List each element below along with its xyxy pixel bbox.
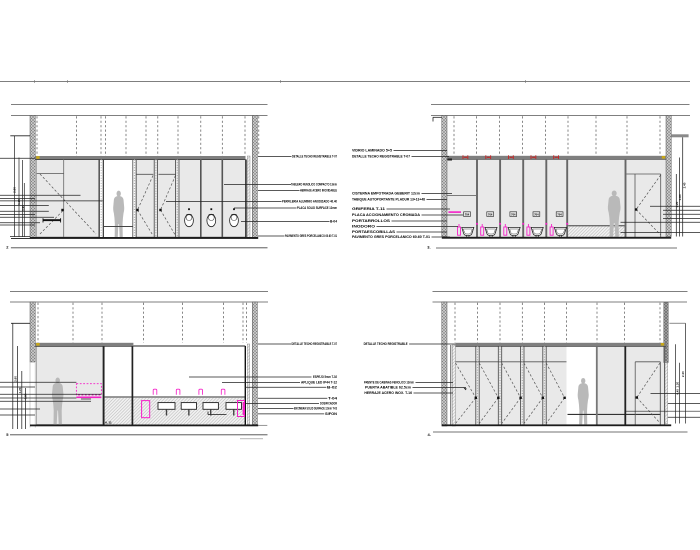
svg-text:704: 704 — [465, 213, 470, 217]
svg-text:PLACA ACCIONAMIENTO CROMADA: PLACA ACCIONAMIENTO CROMADA — [352, 213, 421, 217]
svg-text:1.20: 1.20 — [17, 199, 21, 205]
svg-text:704: 704 — [511, 213, 516, 217]
svg-text:2.60: 2.60 — [13, 187, 17, 193]
svg-text:TABLERO FENOLICO COMPACTO 13mm: TABLERO FENOLICO COMPACTO 13mm — [291, 183, 337, 187]
svg-text:704: 704 — [557, 213, 562, 217]
svg-text:1.80: 1.80 — [678, 194, 682, 200]
svg-text:DETALLE TECHO REGISTRABLE T-07: DETALLE TECHO REGISTRABLE T-07 — [292, 342, 338, 346]
svg-text:PORTAESCOBILLAS: PORTAESCOBILLAS — [352, 230, 395, 234]
svg-text:GRIFERIA T-11: GRIFERIA T-11 — [352, 207, 385, 211]
svg-text:704: 704 — [534, 213, 539, 217]
svg-text:4.: 4. — [428, 432, 431, 437]
svg-text:A.11: A.11 — [105, 421, 112, 425]
svg-text:1.20: 1.20 — [18, 387, 22, 393]
svg-text:2.40: 2.40 — [681, 371, 685, 377]
svg-text:PUERTA ABATIBLE 62.5cm: PUERTA ABATIBLE 62.5cm — [365, 386, 411, 390]
svg-text:TABIQUE AUTOPORTANTE PLADUR 13: TABIQUE AUTOPORTANTE PLADUR 13+13+48 — [352, 198, 425, 202]
svg-text:SIFON: SIFON — [325, 412, 338, 416]
svg-text:ENCIMERA SOLID SURFACE 12mm T-: ENCIMERA SOLID SURFACE 12mm T-03 — [294, 407, 337, 411]
svg-text:FRENTE DE CABINAS FENOLICO 13m: FRENTE DE CABINAS FENOLICO 13mm — [364, 381, 414, 385]
svg-text:3.: 3. — [427, 244, 430, 249]
svg-text:DETALLE TECHO REGISTRABLE T-07: DETALLE TECHO REGISTRABLE T-07 — [292, 155, 337, 159]
svg-text:2.40: 2.40 — [683, 182, 687, 188]
svg-text:ESPEJO 5mm T-02: ESPEJO 5mm T-02 — [313, 375, 337, 379]
svg-text:B-04: B-04 — [330, 220, 337, 224]
svg-text:PAVIMENTO GRES PORCELANICO 60.: PAVIMENTO GRES PORCELANICO 60.60 T-01 — [352, 235, 430, 239]
svg-text:HERRAJE ACERO INOXIDABLE: HERRAJE ACERO INOXIDABLE — [300, 189, 337, 193]
svg-text:1.20: 1.20 — [676, 381, 680, 387]
svg-text:DOSIFICADOR: DOSIFICADOR — [320, 402, 338, 406]
svg-text:PORTARROLLOS: PORTARROLLOS — [352, 219, 390, 223]
svg-text:VIDRIO LAMINADO 5+5: VIDRIO LAMINADO 5+5 — [352, 149, 392, 153]
svg-text:PERFILERIA ALUMINIO ANODIZADO: PERFILERIA ALUMINIO ANODIZADO 40.40 — [282, 200, 337, 204]
svg-text:PLACA SOLID SURFACE 12mm: PLACA SOLID SURFACE 12mm — [297, 206, 337, 210]
svg-text:HERRAJE ACERO INOX. T-16: HERRAJE ACERO INOX. T-16 — [364, 391, 412, 395]
svg-text:INODORO: INODORO — [352, 225, 376, 229]
svg-text:T-04: T-04 — [328, 396, 337, 400]
svg-text:2.60: 2.60 — [13, 376, 17, 382]
svg-text:704: 704 — [488, 213, 493, 217]
svg-text:CISTERNA EMPOTRADA GEBERIT 12c: CISTERNA EMPOTRADA GEBERIT 12cm — [352, 192, 420, 196]
svg-text:DETALLE TECHO REGISTRABLE T-07: DETALLE TECHO REGISTRABLE T-07 — [352, 155, 410, 159]
svg-text:B-02: B-02 — [327, 385, 337, 389]
svg-text:PAVIMENTO GRES PORCELANICO 60.: PAVIMENTO GRES PORCELANICO 60.60 T-01 — [285, 234, 337, 238]
svg-text:APLIQUE LED IP44 T-12: APLIQUE LED IP44 T-12 — [301, 381, 337, 385]
svg-text:DETALLE TECHO REGISTRABLE: DETALLE TECHO REGISTRABLE — [364, 342, 408, 346]
